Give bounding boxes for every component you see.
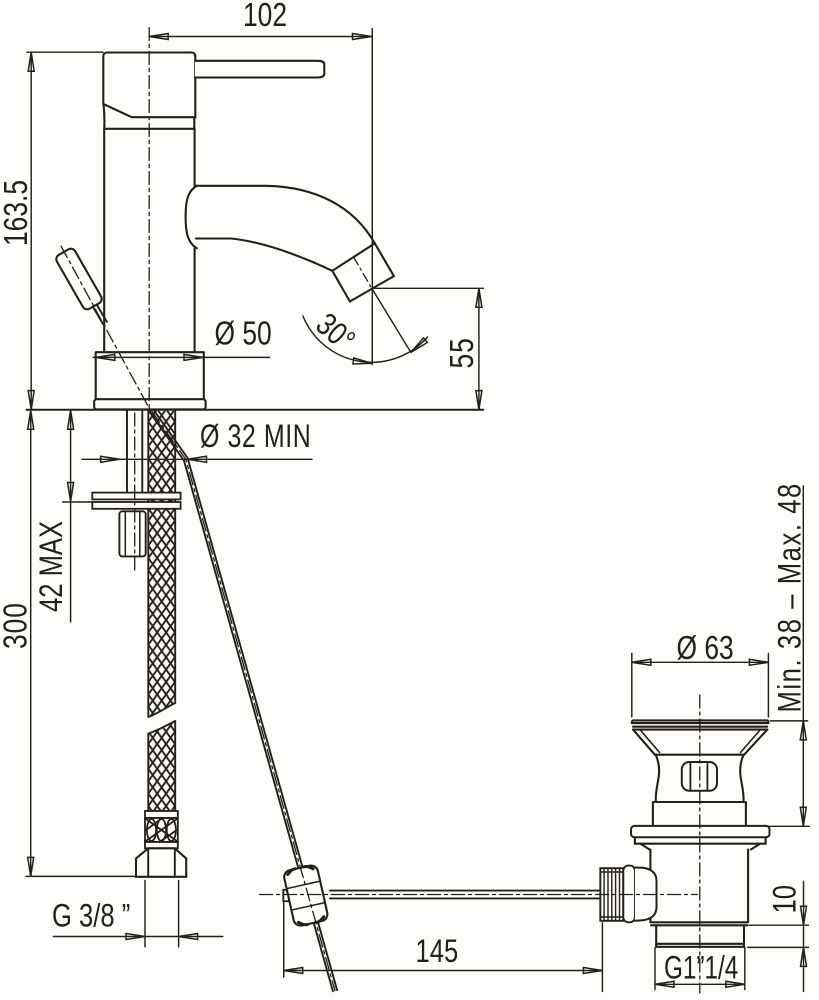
svg-text:Ø 63: Ø 63 [677,630,734,666]
svg-text:145: 145 [416,934,459,969]
svg-text:300: 300 [0,602,34,649]
svg-text:G 3/8 ”: G 3/8 ” [52,899,130,934]
svg-text:55: 55 [444,337,480,368]
svg-text:Ø 50: Ø 50 [215,316,272,352]
svg-text:Ø 32 MIN: Ø 32 MIN [200,419,311,455]
svg-text:G1”1/4: G1”1/4 [664,950,738,986]
svg-text:42 MAX: 42 MAX [34,521,69,612]
svg-text:10: 10 [768,885,803,913]
svg-text:163.5: 163.5 [0,180,35,246]
svg-text:Min. 38 – Max. 48: Min. 38 – Max. 48 [773,484,808,713]
svg-text:102: 102 [243,0,287,34]
